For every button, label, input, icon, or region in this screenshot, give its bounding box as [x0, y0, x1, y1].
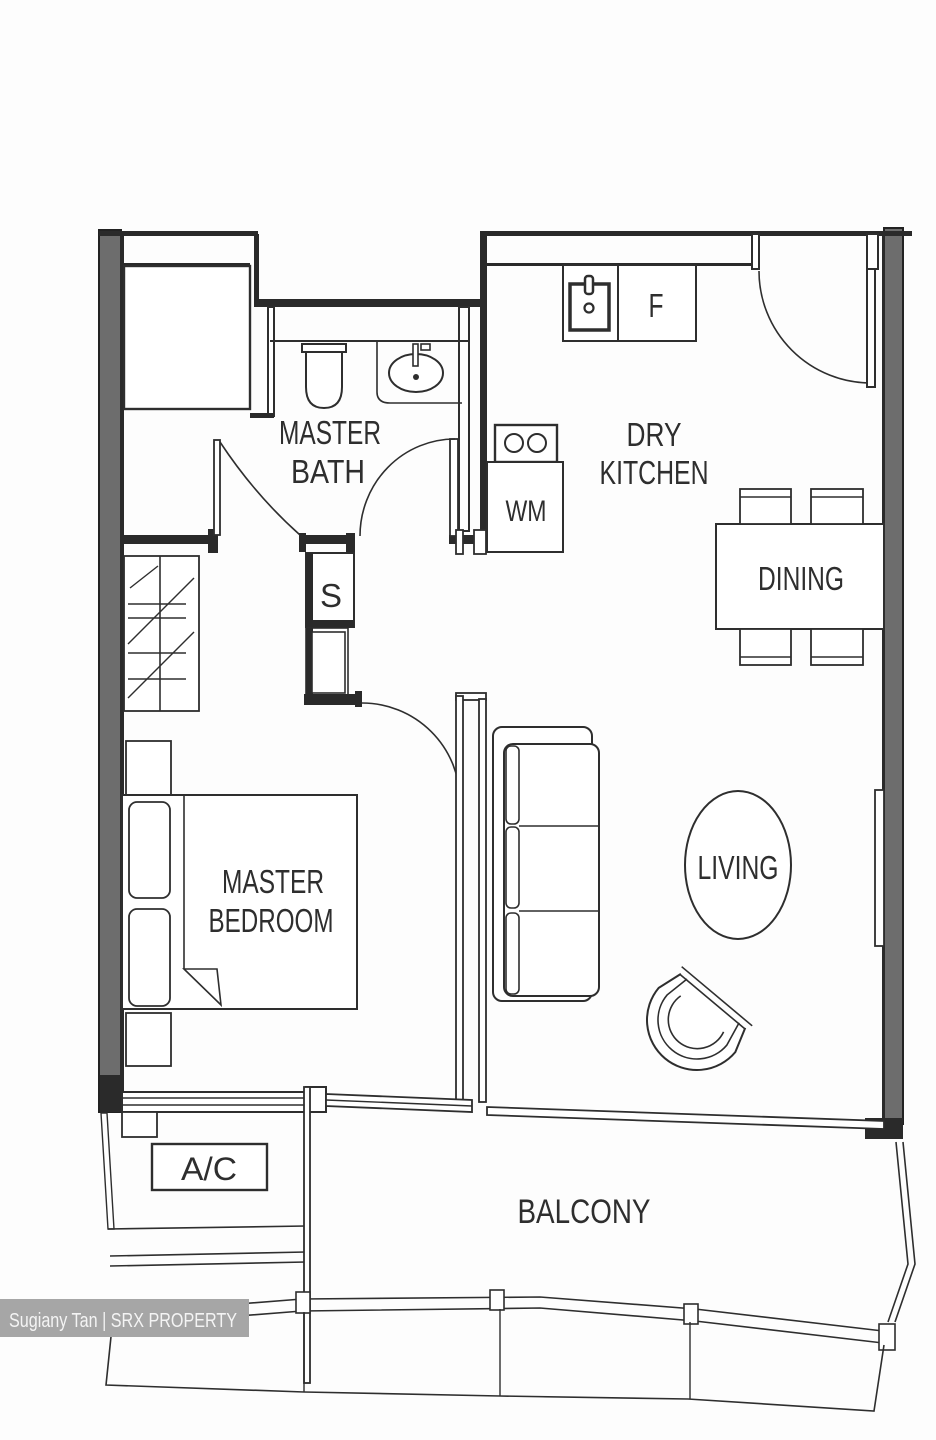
svg-text:BATH: BATH	[291, 453, 365, 490]
svg-text:BALCONY: BALCONY	[518, 1193, 651, 1231]
svg-text:F: F	[649, 287, 664, 324]
svg-text:S: S	[320, 577, 342, 614]
svg-text:MASTER: MASTER	[222, 863, 324, 900]
svg-text:MASTER: MASTER	[279, 414, 381, 451]
svg-text:Sugiany Tan | SRX PROPERTY: Sugiany Tan | SRX PROPERTY	[9, 1310, 237, 1332]
svg-text:LIVING: LIVING	[698, 849, 779, 886]
svg-text:DINING: DINING	[758, 560, 844, 597]
svg-text:A/C: A/C	[181, 1151, 237, 1187]
svg-text:BEDROOM: BEDROOM	[209, 902, 334, 939]
svg-text:DRY: DRY	[627, 416, 682, 453]
svg-text:WM: WM	[506, 495, 547, 528]
svg-text:KITCHEN: KITCHEN	[600, 454, 709, 491]
